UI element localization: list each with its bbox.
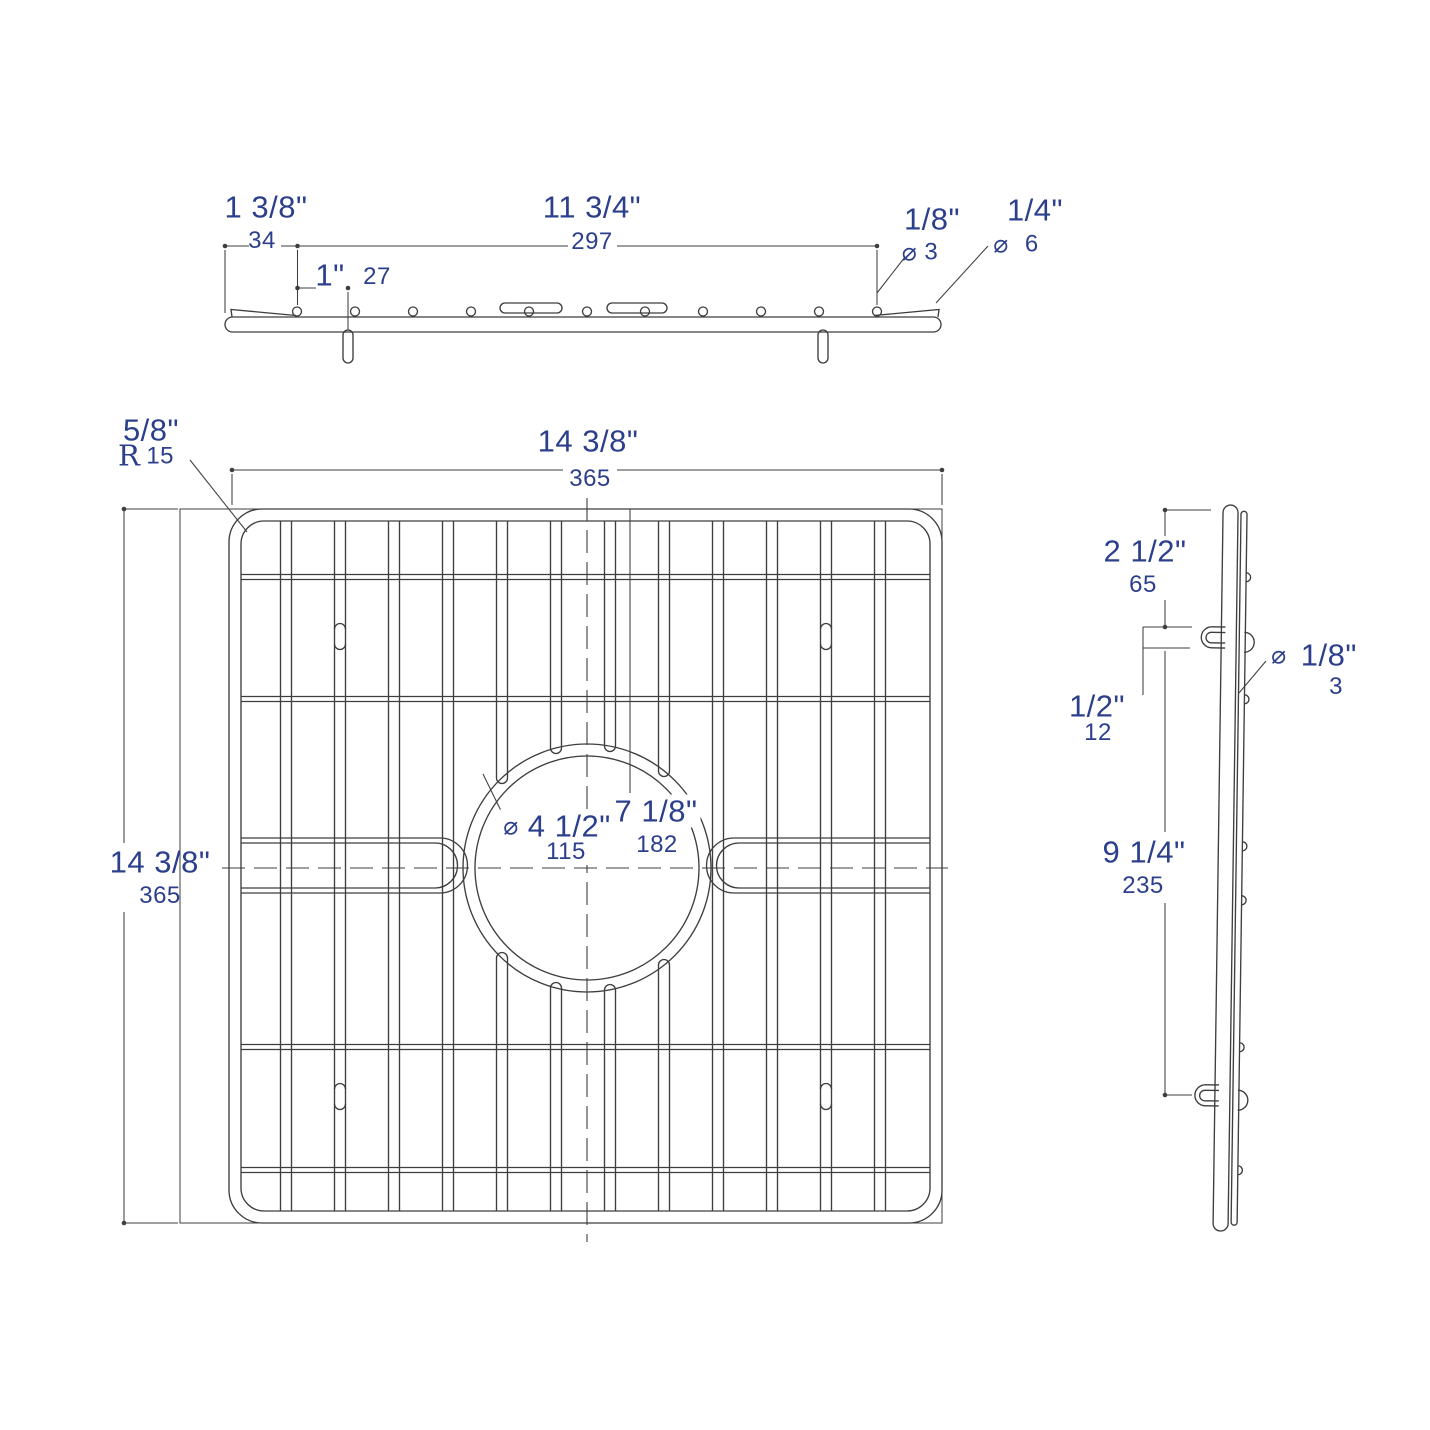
diameter-icon: ⌀ xyxy=(1271,643,1287,668)
diameter-icon: ⌀ xyxy=(503,814,519,839)
profile-foot-right xyxy=(818,330,828,363)
dim-pin-span-mm: 297 xyxy=(571,230,613,254)
dim-foot-height-inches: 1/2" xyxy=(1069,691,1125,722)
dim-pin-span-inches: 11 3/4" xyxy=(543,192,641,223)
profile-foot-left xyxy=(343,330,353,363)
dim-foot-span-inches: 9 1/4" xyxy=(1103,837,1186,868)
dim-overall-width-mm: 365 xyxy=(569,467,611,491)
dim-pin-diameter-mm: ⌀ 3 xyxy=(902,240,938,265)
dim-top-to-foot-inches: 2 1/2" xyxy=(1104,536,1187,567)
dim-center-offset-mm: 182 xyxy=(633,832,681,858)
profile-bar xyxy=(225,317,941,332)
profile-wire-pins xyxy=(293,307,882,316)
dim-foot-height-mm: 12 xyxy=(1084,721,1112,745)
side-wire-bumps xyxy=(1238,573,1251,1175)
grid-frame-outer xyxy=(229,509,942,1223)
dim-top-to-foot-mm: 65 xyxy=(1129,573,1157,597)
radius-prefix: R xyxy=(118,442,140,471)
plan-view xyxy=(122,460,948,1242)
dim-frame-wire-mm-value: 6 xyxy=(1025,232,1039,256)
dim-pin-diameter-inches: 1/8" xyxy=(904,204,960,235)
side-wire-leader xyxy=(1239,661,1266,693)
side-grid-body xyxy=(1193,505,1256,1232)
diameter-icon: ⌀ xyxy=(993,232,1009,257)
dim-corner-radius-mm: R 15 xyxy=(118,442,174,471)
dim-drain-diameter-inches-value: 4 1/2" xyxy=(528,811,611,842)
dim-pin-pitch-mm: 27 xyxy=(363,265,391,289)
dim-cross-wire-inches: ⌀ 1/8" xyxy=(1271,640,1357,671)
dim-frame-wire-mm: ⌀ 6 xyxy=(993,232,1038,257)
technical-drawing-canvas: 1 3/8" 34 11 3/4" 297 1" 27 1/8" ⌀ 3 1/4… xyxy=(0,0,1430,1430)
dim-overall-width-inches: 14 3/8" xyxy=(538,426,639,457)
profile-hairpin-loop-right xyxy=(607,303,667,313)
drawing-svg xyxy=(0,0,1430,1430)
vertical-wires xyxy=(281,521,886,1211)
side-dimension-lines xyxy=(1143,508,1266,1098)
dim-center-offset-inches: 7 1/8" xyxy=(612,795,701,828)
dim-cross-wire-mm: 3 xyxy=(1329,675,1343,699)
dim-overall-depth-mm: 365 xyxy=(139,884,181,908)
dim-corner-radius-mm-value: 15 xyxy=(146,444,174,468)
radius-leader xyxy=(190,460,247,532)
diameter-icon: ⌀ xyxy=(902,240,918,265)
horizontal-wires xyxy=(241,575,930,1173)
dim-cross-wire-inches-value: 1/8" xyxy=(1301,640,1357,671)
interrupted-vertical-wires xyxy=(497,521,670,1211)
dim-end-offset-mm: 34 xyxy=(248,229,276,253)
dim-foot-span-mm: 235 xyxy=(1122,874,1164,898)
dim-overall-depth-inches: 14 3/8" xyxy=(110,847,211,878)
dim-end-offset-inches: 1 3/8" xyxy=(225,192,308,223)
dim-drain-diameter-mm: 115 xyxy=(543,839,589,865)
dim-pin-diameter-mm-value: 3 xyxy=(924,240,938,264)
dim-pin-pitch-inches: 1" xyxy=(315,260,344,291)
dim-frame-wire-inches: 1/4" xyxy=(1007,195,1063,226)
side-bar xyxy=(1213,505,1238,1231)
